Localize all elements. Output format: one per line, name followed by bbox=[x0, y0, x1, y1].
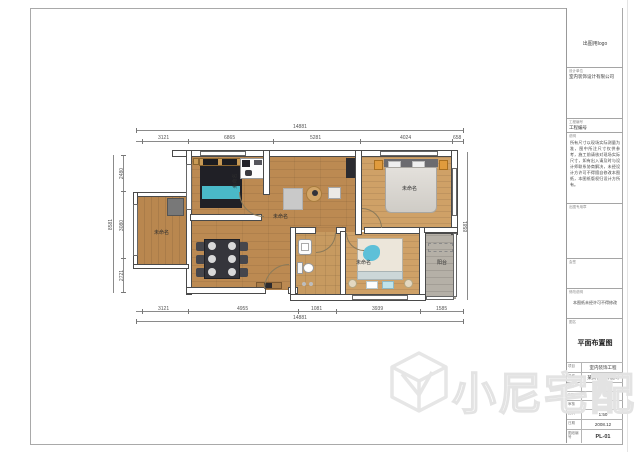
toilet-bowl bbox=[303, 263, 314, 273]
plate bbox=[228, 242, 236, 250]
dining-chair bbox=[239, 268, 248, 277]
dim-label: 3939 bbox=[372, 307, 383, 312]
room-label-living: 未命名 bbox=[273, 214, 288, 220]
dim-tick bbox=[188, 309, 189, 314]
tb-row-value: PL-01 bbox=[583, 430, 623, 443]
tb-stamp-label: 出图专用章 bbox=[567, 204, 623, 209]
dim-tick bbox=[142, 139, 143, 144]
wall-leftroom-bottom bbox=[133, 264, 189, 269]
floor-plan: 未命名 未命名 未命名 未命名 未命名 阳台 14881 3121 6865 5… bbox=[0, 0, 640, 452]
dim-label: 8581 bbox=[109, 219, 114, 230]
tb-drawing-name-section: 图名 平面布置图 bbox=[567, 318, 623, 362]
tb-table-row: 名称 某某花园样板间 bbox=[567, 372, 623, 382]
dim-label: 2721 bbox=[120, 270, 125, 281]
plate bbox=[208, 268, 216, 276]
tb-row-value: 2008.12 bbox=[583, 420, 623, 429]
dim-tick bbox=[121, 191, 126, 192]
wall-leftroom-top bbox=[133, 192, 189, 197]
window-top-bedroom-right bbox=[380, 151, 438, 156]
tb-row-label: 比例 bbox=[567, 410, 582, 419]
bed-bottom-cushion bbox=[382, 281, 394, 289]
window-top-bedroom-left bbox=[200, 151, 246, 156]
dim-line-top-segments bbox=[136, 141, 464, 142]
window-bedroom-left bbox=[186, 164, 192, 210]
tb-row-label: 名称 bbox=[567, 373, 582, 382]
bed-left-pillow bbox=[222, 159, 237, 165]
tb-row-value: 1:50 bbox=[583, 410, 623, 419]
dim-label: 4024 bbox=[400, 136, 411, 141]
window-balcony-bottom bbox=[426, 296, 454, 300]
dim-label: 658 bbox=[453, 136, 461, 141]
dim-tick bbox=[121, 155, 126, 156]
dim-tick bbox=[463, 139, 464, 144]
floor-drain bbox=[302, 282, 306, 286]
tb-revision-label: 修改说明 bbox=[567, 289, 623, 294]
tb-notes-body: 所有尺寸以现场实际测量为准，图中所注尺寸仅供参考，施工前请核对现场实际尺寸，如有… bbox=[567, 138, 623, 190]
tb-countersign-label: 会签 bbox=[567, 259, 623, 264]
plate bbox=[228, 255, 236, 263]
dim-line-bottom-overall bbox=[136, 321, 464, 322]
tb-table-row: 日期 2008.12 bbox=[567, 419, 623, 429]
tb-projectno-value: 工程编号 bbox=[567, 124, 623, 131]
tb-table-row: 图纸编号 PL-01 bbox=[567, 429, 623, 443]
tb-row-label: 项目 bbox=[567, 363, 582, 372]
title-block: 出图用logo 设计单位 室内装饰设计有限公司 工程编号 工程编号 说明 所有尺… bbox=[566, 8, 622, 443]
bathroom-sink-basin bbox=[301, 243, 309, 251]
tb-row-label: 图纸编号 bbox=[567, 430, 582, 443]
nightstand-orange bbox=[439, 160, 448, 170]
dim-tick bbox=[273, 139, 274, 144]
tb-row-value: 室内装饰工程 bbox=[583, 363, 623, 372]
tb-row-label: 日期 bbox=[567, 420, 582, 429]
window-left-room bbox=[133, 204, 138, 256]
wall-bedroom-right-left bbox=[355, 150, 362, 235]
dim-tick bbox=[121, 258, 126, 259]
room-label-bedroom-right: 未命名 bbox=[402, 186, 417, 192]
dining-chair bbox=[239, 255, 248, 264]
wall-bathroom-left bbox=[290, 227, 296, 301]
dim-label: 4955 bbox=[237, 307, 248, 312]
tb-notes-section: 说明 所有尺寸以现场实际测量为准，图中所注尺寸仅供参考，施工前请核对现场实际尺寸… bbox=[567, 132, 623, 203]
dim-label: 8581 bbox=[464, 221, 469, 232]
tb-revision-section: 修改说明 本图纸未经许可不得修改 bbox=[567, 288, 623, 318]
window-balcony-right bbox=[453, 233, 457, 297]
tb-row-value bbox=[583, 401, 623, 409]
dim-tick bbox=[360, 139, 361, 144]
tb-logo-text: 出图用logo bbox=[567, 40, 623, 47]
dim-tick bbox=[136, 128, 137, 133]
dim-tick bbox=[142, 309, 143, 314]
wall-living-bottom bbox=[186, 287, 266, 294]
nightstand-orange bbox=[374, 160, 383, 170]
tb-table-row: 设计 bbox=[567, 382, 623, 391]
tb-table-row: 制图 bbox=[567, 391, 623, 400]
tb-row-label: 制图 bbox=[567, 392, 582, 400]
dim-label: 6865 bbox=[224, 136, 235, 141]
dim-label: 5281 bbox=[310, 136, 321, 141]
kitchen-sink bbox=[312, 190, 318, 196]
tb-row-value bbox=[583, 383, 623, 391]
bed-bottom-cushion bbox=[366, 281, 378, 289]
tb-countersign-section: 会签 bbox=[567, 258, 623, 288]
dim-label: 2480 bbox=[120, 168, 125, 179]
wall-bedroom-left-right bbox=[263, 150, 270, 195]
dim-label: 14881 bbox=[293, 125, 307, 130]
window-bedroom-right bbox=[452, 168, 457, 216]
dim-tick bbox=[298, 309, 299, 314]
desk-printer bbox=[254, 160, 262, 165]
tb-row-value bbox=[583, 392, 623, 400]
room-label-bedroom-bottom: 未命名 bbox=[356, 260, 371, 266]
dining-chair bbox=[239, 242, 248, 251]
wall-bathroom-right bbox=[340, 231, 346, 297]
plate bbox=[208, 255, 216, 263]
window-bedroom-bottom bbox=[352, 295, 408, 300]
tb-row-value: 某某花园样板间 bbox=[583, 373, 623, 382]
tb-table-row: 审核 bbox=[567, 400, 623, 409]
tb-table-row: 比例 1:50 bbox=[567, 409, 623, 419]
dim-tick bbox=[136, 319, 137, 324]
tb-row-label: 审核 bbox=[567, 401, 582, 409]
room-label-left-room: 未命名 bbox=[154, 230, 169, 236]
tb-table-row: 项目 室内装饰工程 bbox=[567, 362, 623, 372]
bed-bottom-footband bbox=[357, 271, 403, 280]
tb-row-label: 设计 bbox=[567, 383, 582, 391]
wardrobe bbox=[167, 198, 184, 216]
tb-company-section: 设计单位 室内装饰设计有限公司 bbox=[567, 67, 623, 118]
round-stool bbox=[348, 279, 357, 288]
dim-label: 14881 bbox=[293, 316, 307, 321]
dim-tick bbox=[463, 128, 464, 133]
wall-bedroom-bottom-right bbox=[419, 227, 426, 301]
tb-drawing-name-label: 图名 bbox=[567, 319, 623, 324]
tb-drawing-name-value: 平面布置图 bbox=[567, 338, 623, 348]
dim-tick bbox=[188, 139, 189, 144]
wall-bedroom-left-bottom bbox=[190, 214, 262, 221]
dim-tick bbox=[121, 292, 126, 293]
room-label-balcony: 阳台 bbox=[437, 260, 447, 266]
plate bbox=[228, 268, 236, 276]
dim-line-top-overall bbox=[136, 130, 464, 131]
floor-drain bbox=[309, 282, 313, 286]
dim-label: 1585 bbox=[436, 307, 447, 312]
dim-line-bottom-segments bbox=[136, 311, 464, 312]
room-label-bedroom-left: 未命名 bbox=[233, 173, 239, 188]
tb-company-value: 室内装饰设计有限公司 bbox=[567, 73, 623, 80]
dim-tick bbox=[463, 309, 464, 314]
tb-revision-value: 本图纸未经许可不得修改 bbox=[567, 300, 623, 306]
kitchen-rug bbox=[283, 188, 303, 210]
plate bbox=[208, 242, 216, 250]
dim-label: 1081 bbox=[311, 307, 322, 312]
dim-label: 3121 bbox=[158, 136, 169, 141]
nightstand bbox=[193, 158, 199, 165]
tb-stamp-section: 出图专用章 bbox=[567, 203, 623, 258]
dim-label: 3080 bbox=[120, 220, 125, 231]
tb-logo-section: 出图用logo bbox=[567, 8, 623, 67]
round-stool bbox=[404, 279, 413, 288]
desk-chair bbox=[245, 170, 252, 176]
dim-label: 3121 bbox=[158, 307, 169, 312]
dim-tick bbox=[336, 309, 337, 314]
kitchen-stove bbox=[328, 187, 341, 199]
desk-monitor bbox=[242, 160, 250, 167]
bed-left-pillow bbox=[203, 159, 218, 165]
tb-projectno-section: 工程编号 工程编号 bbox=[567, 118, 623, 132]
balcony-door-dashed bbox=[428, 243, 453, 252]
dim-tick bbox=[420, 309, 421, 314]
dim-tick bbox=[463, 319, 464, 324]
